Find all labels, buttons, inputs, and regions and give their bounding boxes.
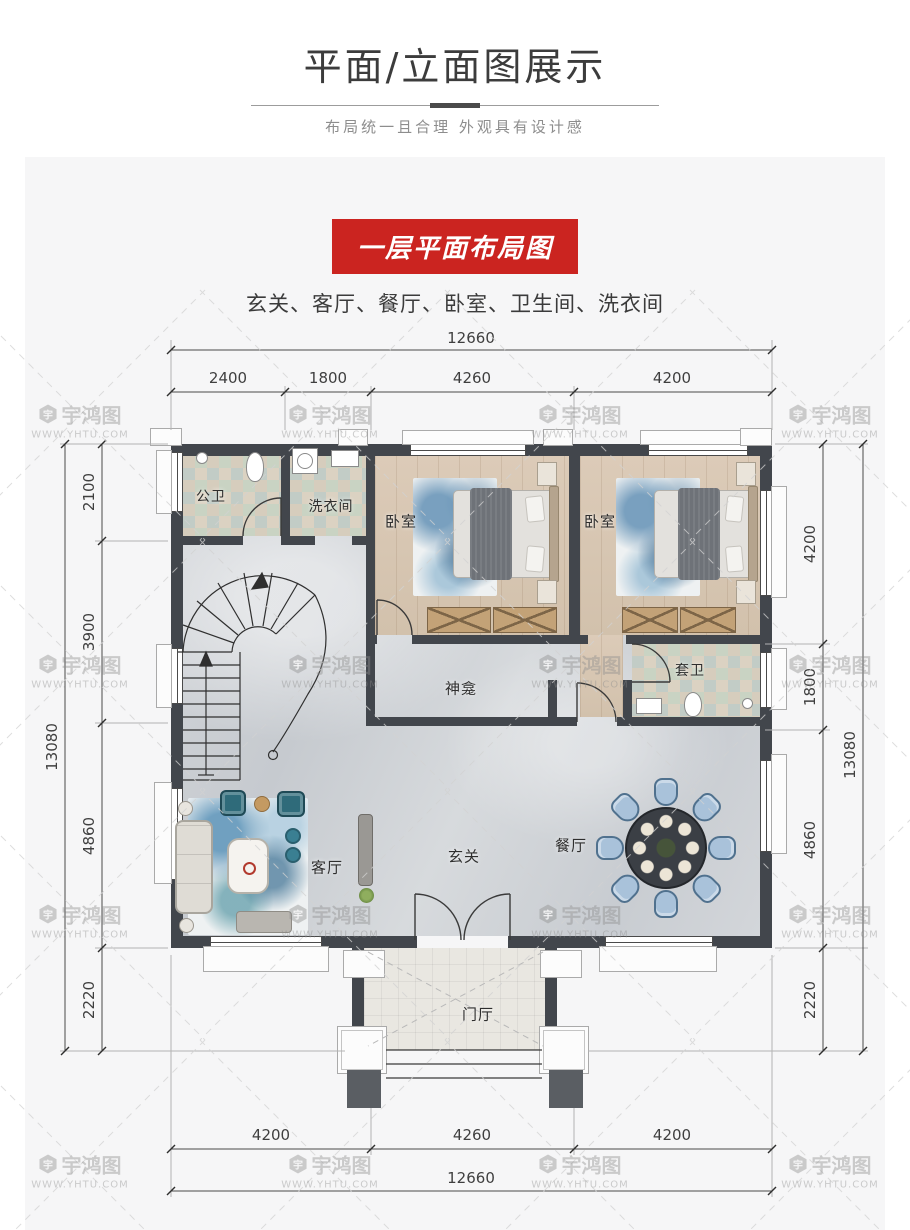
floor-plan: 公卫 洗衣间 卧室 卧室 套卫 神龛 客厅 玄关 餐厅 门厅 12660 240… (0, 0, 910, 1230)
sill-right-ensuite (771, 648, 787, 710)
dim-left-seg-4: 2220 (80, 981, 98, 1019)
ensuite-toilet-icon (684, 692, 702, 717)
wall-shrine-dining-b (617, 717, 772, 726)
dim-bottom-seg-2: 4260 (453, 1126, 491, 1144)
foyer-console (358, 814, 373, 886)
sill-top-window1 (402, 430, 534, 445)
sill-left-stair (156, 644, 172, 708)
floor-corridor (580, 635, 623, 717)
laundry-sink-icon (331, 450, 359, 467)
dim-top-seg-1: 2400 (209, 369, 247, 387)
wall-bath-laundry (281, 444, 290, 540)
wall-shrine-dining-a (375, 717, 577, 726)
bedroom2-headboard (748, 486, 758, 582)
wall-bedroom1-bottom-a (366, 635, 377, 644)
foyer-plant (359, 888, 374, 903)
bedroom2-blanket (678, 488, 720, 580)
living-pouf-2 (285, 847, 301, 863)
wall-bath-bottom-b (281, 536, 315, 545)
porch-column-left (337, 1026, 387, 1074)
bedroom1-nightstand-2 (537, 580, 557, 604)
sill-right-dining (771, 754, 787, 854)
window-guest-bath-left (171, 452, 183, 512)
living-side-table-2 (179, 918, 194, 933)
dim-right-seg-3: 4860 (801, 821, 819, 859)
porch-column-base-left (347, 1070, 381, 1108)
guest-bath-toilet-icon (246, 452, 264, 482)
dim-bottom-seg-1: 4200 (252, 1126, 290, 1144)
living-armchair-1 (220, 790, 246, 816)
sill-bottom-dining (599, 946, 717, 972)
wall-bedroom1-bottom-b (412, 635, 574, 644)
dining-chair-3 (654, 890, 678, 918)
living-sofa (175, 820, 213, 914)
bedroom1-pillow-2 (525, 545, 545, 572)
dining-chair-1 (708, 836, 736, 860)
wall-bedrooms-divider (569, 444, 580, 644)
dim-right-seg-2: 1800 (801, 668, 819, 706)
sill-left-bath (156, 450, 172, 514)
porch-column-base-right (549, 1070, 583, 1108)
room-label-laundry: 洗衣间 (309, 496, 354, 516)
room-label-living: 客厅 (311, 857, 343, 878)
bedroom1-nightstand-1 (537, 462, 557, 486)
sill-left-living (154, 782, 172, 884)
living-coffee-decor (243, 862, 256, 875)
bedroom1-wardrobe-2 (493, 607, 557, 633)
dim-left-total: 13080 (43, 723, 61, 771)
dim-right-total: 13080 (841, 731, 859, 779)
dining-table (625, 807, 707, 889)
ensuite-vanity-icon (636, 698, 662, 714)
bedroom2-pillow-1 (725, 495, 745, 523)
room-label-bedroom1: 卧室 (385, 511, 417, 532)
bedroom1-blanket (470, 488, 512, 580)
sill-right-bedroom2 (771, 486, 787, 598)
room-label-porch: 门厅 (462, 1004, 494, 1025)
dim-left-seg-3: 4860 (80, 817, 98, 855)
room-label-ensuite: 套卫 (675, 660, 705, 680)
guest-bath-shower-icon (196, 452, 208, 464)
room-label-foyer: 玄关 (448, 846, 480, 867)
living-wood-table (254, 796, 270, 812)
room-label-dining: 餐厅 (555, 835, 587, 856)
wall-bedroom2-bottom-a (580, 635, 588, 644)
window-bedroom1-top (410, 444, 526, 456)
bedroom2-nightstand-2 (736, 580, 756, 604)
wall-ensuite-left (623, 680, 632, 726)
dim-bottom-total: 12660 (447, 1169, 495, 1187)
bedroom2-nightstand-1 (736, 462, 756, 486)
porch-pier-top-right (540, 950, 582, 978)
pier-top-mid1 (338, 429, 368, 446)
wall-bedroom2-bottom-b (626, 635, 772, 644)
page: 平面/立面图展示 布局统一且合理 外观具有设计感 一层平面布局图 玄关、客厅、餐… (0, 0, 910, 1230)
dim-left-seg-2: 3900 (80, 613, 98, 651)
ensuite-drain-icon (742, 698, 753, 709)
bedroom2-wardrobe-1 (622, 607, 678, 633)
laundry-washer-drum-icon (297, 453, 313, 469)
dim-right-seg-1: 4200 (801, 525, 819, 563)
floor-porch (364, 948, 557, 1050)
bedroom1-pillow-1 (525, 495, 546, 523)
living-side-table-1 (178, 801, 193, 816)
bedroom1-wardrobe-1 (427, 607, 491, 633)
dining-chair-5 (596, 836, 624, 860)
dim-top-seg-3: 4260 (453, 369, 491, 387)
pier-top-right (740, 428, 772, 446)
porch-column-right (539, 1026, 589, 1074)
dim-bottom-seg-3: 4200 (653, 1126, 691, 1144)
dim-left-seg-1: 2100 (80, 473, 98, 511)
window-bedroom2-top (648, 444, 748, 456)
porch-pier-top-left (343, 950, 385, 978)
sill-top-window2 (640, 430, 756, 445)
pier-top-left (150, 428, 182, 446)
bedroom1-headboard (549, 486, 559, 582)
living-armchair-2 (277, 791, 305, 817)
dim-right-seg-4: 2220 (801, 981, 819, 1019)
bedroom2-pillow-2 (725, 545, 744, 572)
living-pouf-1 (285, 828, 301, 844)
room-label-shrine: 神龛 (445, 678, 477, 699)
sill-bottom-living (203, 946, 329, 972)
window-stair-left (171, 648, 183, 704)
wall-hall-bedroom1 (366, 444, 375, 726)
living-tv-bench (236, 911, 292, 933)
dim-top-seg-2: 1800 (309, 369, 347, 387)
dim-top-total: 12660 (447, 329, 495, 347)
pier-top-mid2 (543, 429, 573, 446)
dining-chair-7 (654, 778, 678, 806)
room-label-bedroom2: 卧室 (584, 511, 616, 532)
bedroom2-wardrobe-2 (680, 607, 736, 633)
room-label-guest-bath: 公卫 (196, 486, 226, 506)
dim-top-seg-4: 4200 (653, 369, 691, 387)
wall-bath-bottom-a (171, 536, 243, 545)
